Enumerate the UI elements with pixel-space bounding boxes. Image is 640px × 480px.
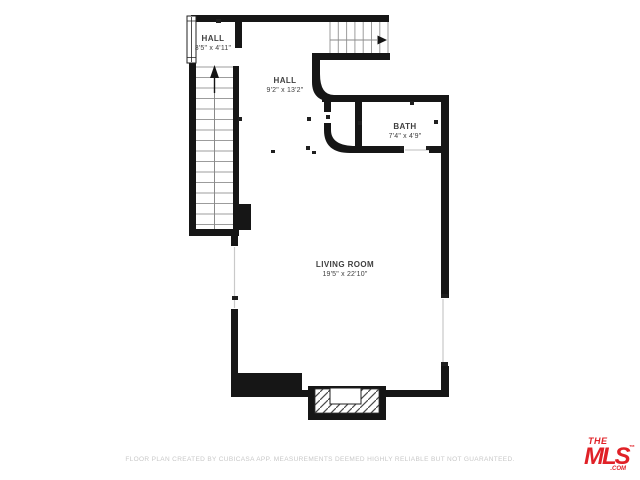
room-label-bath: BATH 7'4" x 4'9" bbox=[389, 122, 422, 140]
room-dimensions: 7'4" x 4'9" bbox=[389, 133, 422, 140]
room-dimensions: 3'5" x 4'11" bbox=[195, 45, 231, 52]
room-label-living-room: LIVING ROOM 19'5" x 22'10" bbox=[316, 260, 374, 278]
floorplan-page: HALL 3'5" x 4'11" HALL 9'2" x 13'2" BATH… bbox=[0, 0, 640, 480]
floorplan-drawing bbox=[0, 0, 640, 480]
room-name: LIVING ROOM bbox=[316, 260, 374, 269]
room-label-hall-main: HALL 9'2" x 13'2" bbox=[267, 76, 304, 94]
room-label-hall-small: HALL 3'5" x 4'11" bbox=[195, 34, 231, 52]
up-arrow-icon bbox=[210, 65, 219, 93]
right-arrow-icon bbox=[378, 36, 388, 45]
walls-layer bbox=[189, 15, 449, 397]
opening-lines bbox=[235, 150, 444, 365]
room-name: HALL bbox=[267, 76, 304, 85]
room-name: HALL bbox=[195, 34, 231, 43]
fireplace-icon bbox=[308, 386, 386, 420]
mls-logo: THE MLS™ .COM bbox=[584, 437, 632, 472]
room-dimensions: 19'5" x 22'10" bbox=[316, 271, 374, 278]
door-markers bbox=[216, 19, 448, 366]
staircase-left bbox=[196, 65, 233, 229]
room-name: BATH bbox=[389, 122, 422, 131]
trademark-symbol: ™ bbox=[629, 445, 635, 451]
disclaimer-text: FLOOR PLAN CREATED BY CUBICASA APP. MEAS… bbox=[125, 456, 514, 463]
room-dimensions: 9'2" x 13'2" bbox=[267, 87, 304, 94]
staircase-upper bbox=[330, 22, 388, 53]
